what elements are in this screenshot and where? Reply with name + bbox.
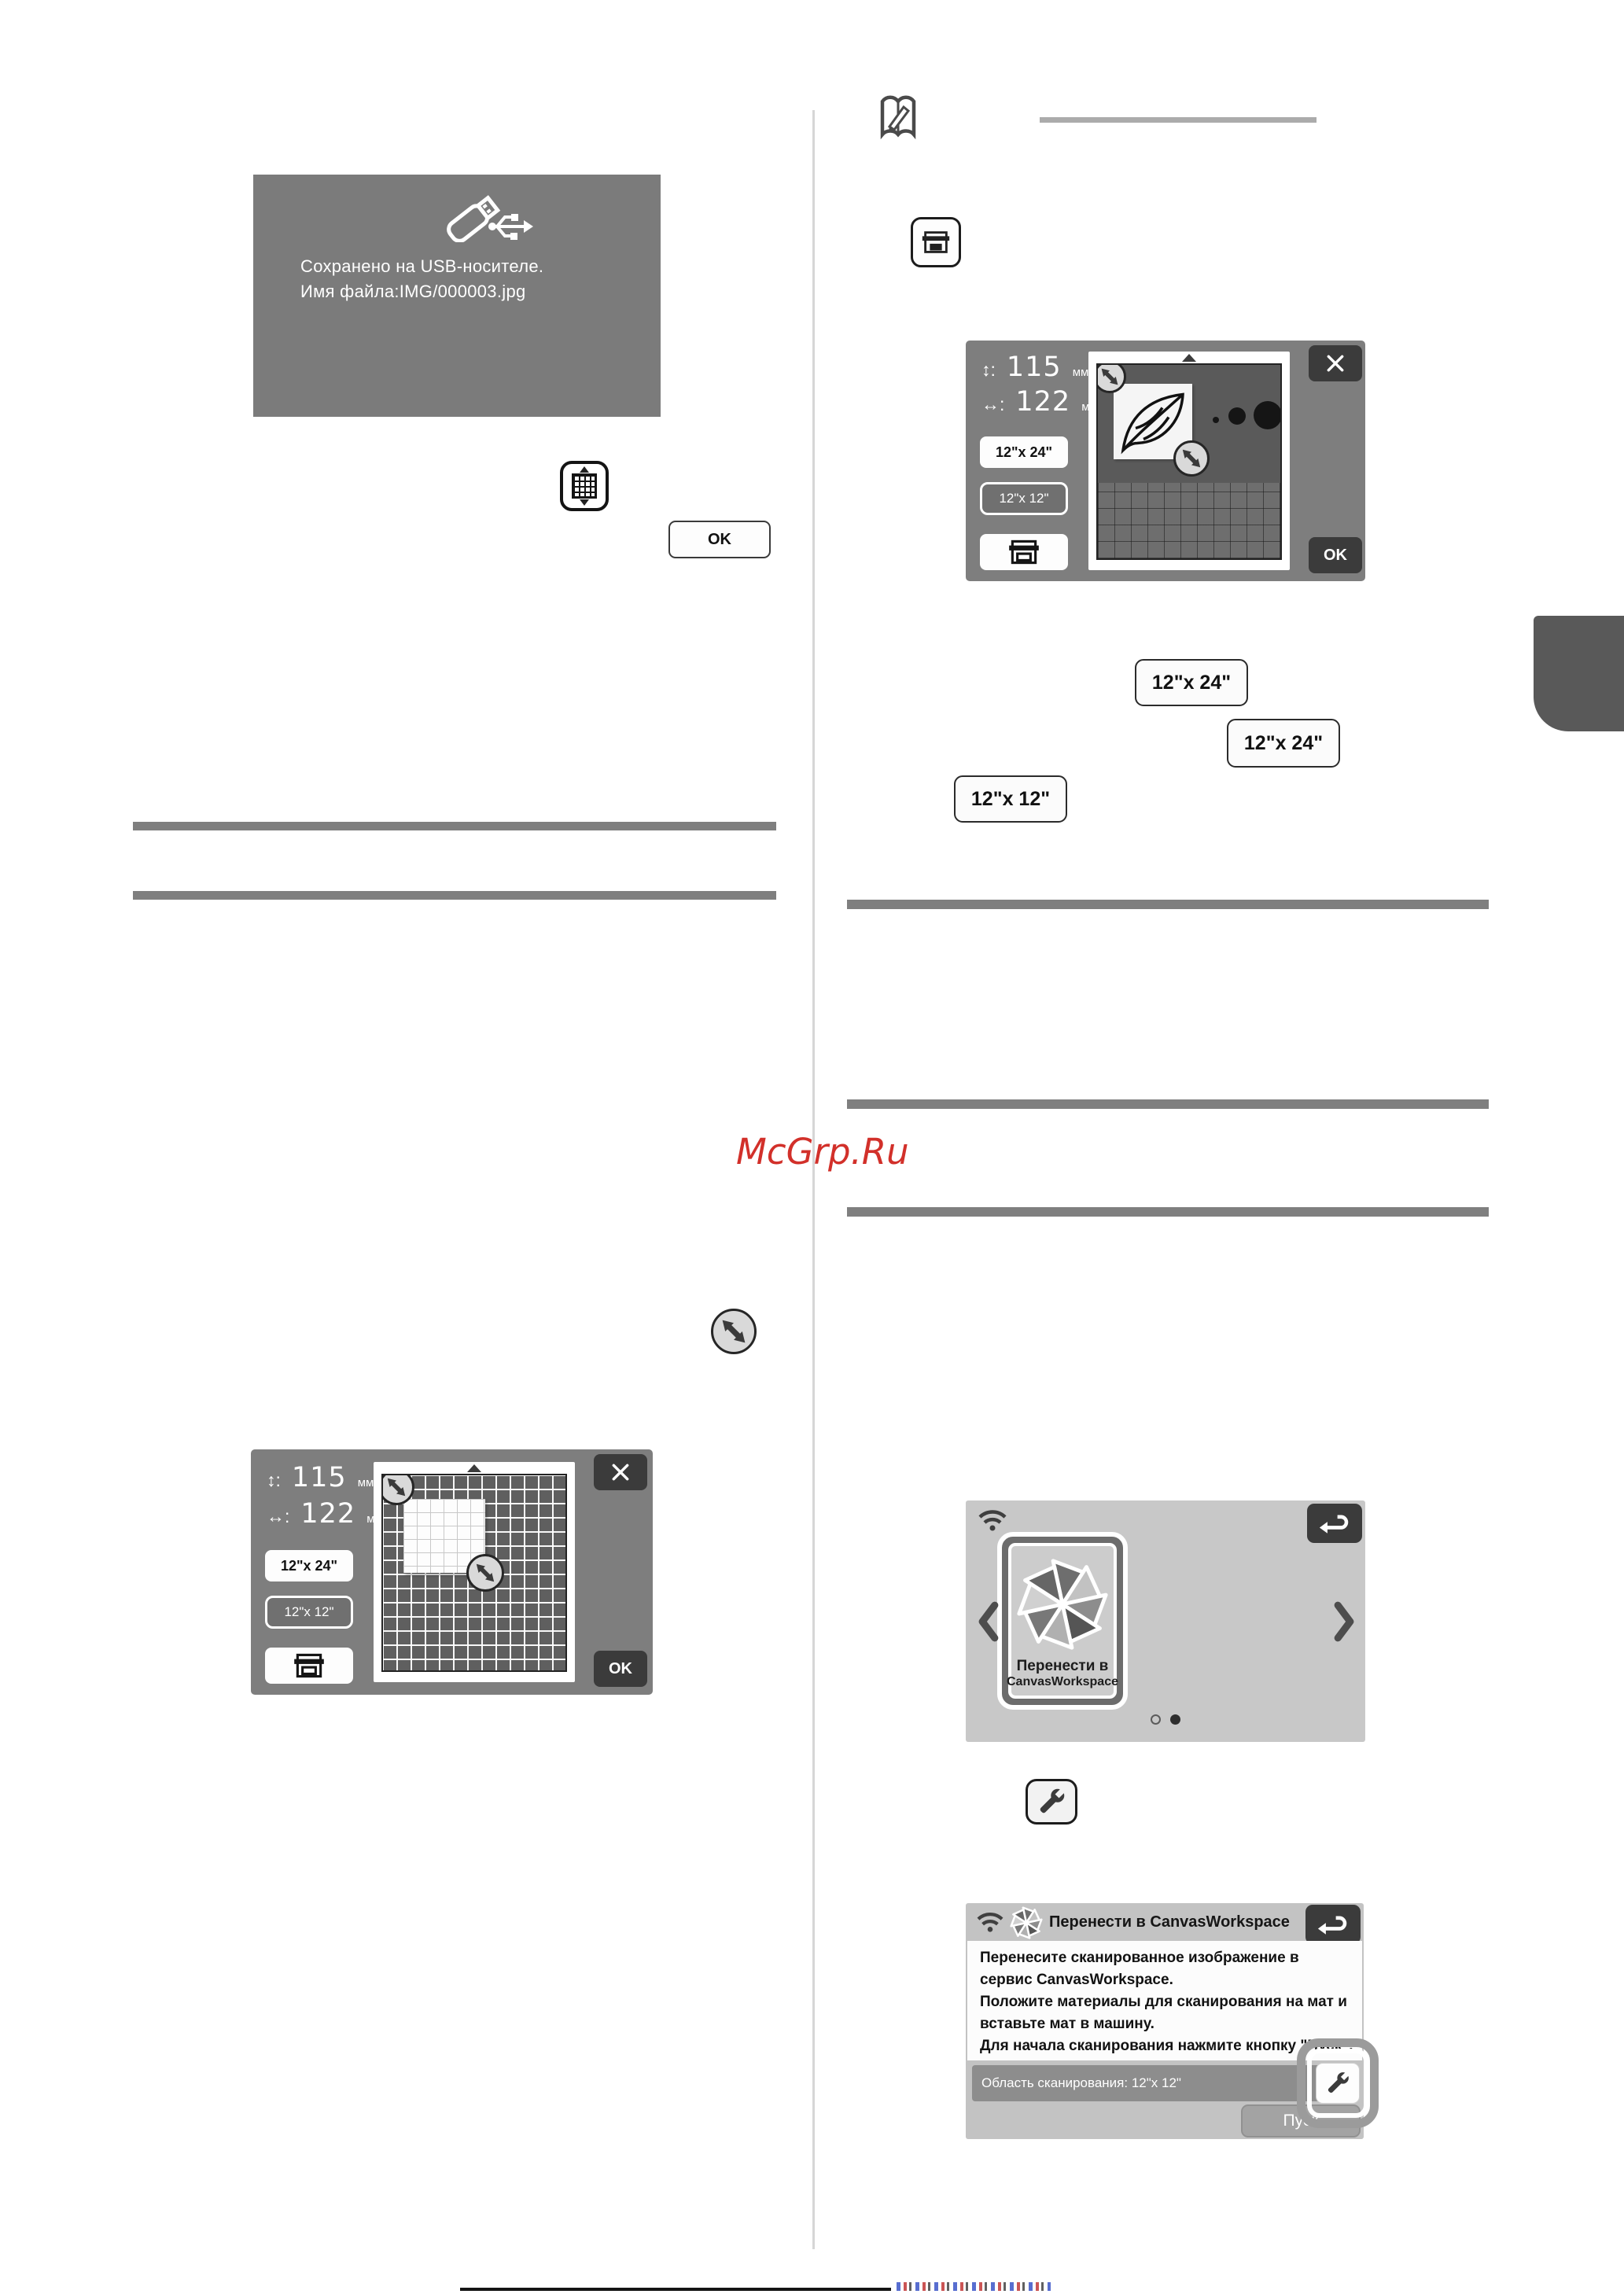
horizontal-arrow-icon: ↔: — [981, 394, 1004, 415]
body-line: сервис CanvasWorkspace. — [980, 1969, 1362, 1991]
section-rule — [133, 891, 776, 900]
page-dot-inactive — [1151, 1714, 1161, 1725]
dialog-title: Перенести в CanvasWorkspace — [1049, 1903, 1290, 1941]
back-button[interactable] — [1305, 1905, 1361, 1944]
ok-button[interactable]: OK — [668, 521, 771, 558]
section-rule — [847, 900, 1489, 909]
wifi-icon — [977, 1507, 1008, 1532]
manual-page: Сохранено на USB-носителе. Имя файла:IMG… — [0, 0, 1624, 2294]
mat-preview — [374, 1462, 575, 1682]
usb-message-line1: Сохранено на USB-носителе. — [300, 256, 543, 277]
close-button[interactable] — [594, 1454, 647, 1490]
machine-load-mat-icon — [291, 1651, 327, 1680]
carousel-prev-icon[interactable] — [978, 1601, 999, 1642]
ok-button[interactable]: OK — [1309, 537, 1362, 573]
pinwheel-icon — [1010, 1906, 1043, 1939]
mat-grid-icon — [572, 473, 597, 499]
mat-dotted-grid — [1098, 483, 1280, 558]
size-12x12-button[interactable]: 12"x 12" — [980, 482, 1068, 515]
footer-fine-print — [897, 2282, 1051, 2291]
wrench-icon — [1324, 2070, 1351, 2097]
section-rule — [847, 1099, 1489, 1109]
calibration-dot-small — [1213, 417, 1219, 423]
horizontal-arrow-icon: ↔: — [267, 1506, 289, 1527]
height-readout: ↕: 115 мм — [981, 352, 1088, 383]
usb-flash-drive-icon — [442, 186, 533, 242]
ok-button-highlight-inner: OK — [658, 511, 781, 568]
feed-mat-button[interactable] — [980, 534, 1068, 570]
triangle-down-icon — [580, 499, 589, 506]
size-12x24-button[interactable]: 12"x 24" — [265, 1550, 353, 1581]
pinwheel-icon — [1015, 1557, 1110, 1651]
ok-button-highlight: OK — [646, 500, 793, 579]
size-button-12x24-top[interactable]: 12"x 24" — [1135, 659, 1248, 706]
feed-mat-button[interactable] — [265, 1648, 353, 1684]
close-icon — [1325, 353, 1346, 374]
load-mat-button[interactable] — [911, 217, 961, 267]
return-arrow-icon — [1319, 1512, 1350, 1534]
wifi-icon — [975, 1909, 1005, 1933]
card-title-line2: CanvasWorkspace — [1007, 1675, 1118, 1689]
scan-settings-wrench-button[interactable] — [1316, 2063, 1360, 2104]
background-scan-grid-button[interactable] — [560, 461, 609, 511]
height-readout: ↕: 115 мм — [267, 1462, 374, 1493]
chapter-edge-tab — [1534, 616, 1624, 731]
body-line: Перенесите сканированное изображение в — [980, 1947, 1362, 1969]
mat-scan-area — [1096, 363, 1282, 560]
page-dots — [966, 1714, 1365, 1725]
mat-scan-area — [381, 1474, 567, 1672]
transfer-to-canvasworkspace-card[interactable]: Перенести в CanvasWorkspace — [997, 1532, 1128, 1710]
width-readout: ↔: 122 мм — [267, 1498, 383, 1530]
back-button[interactable] — [1307, 1504, 1362, 1543]
body-line: вставьте мат в машину. — [980, 2013, 1362, 2035]
return-arrow-icon — [1317, 1913, 1349, 1935]
calibration-dot-medium — [1228, 407, 1246, 425]
mat-top-marker-icon — [1182, 354, 1196, 362]
dialog-body-text: Перенесите сканированное изображение в с… — [967, 1941, 1362, 2060]
wrench-button-highlight — [1297, 2038, 1379, 2128]
triangle-up-icon — [580, 466, 589, 473]
wrench-icon — [1036, 1786, 1067, 1817]
carousel-next-icon[interactable] — [1334, 1601, 1354, 1642]
size-button-12x24-middle[interactable]: 12"x 24" — [1227, 719, 1340, 768]
size-12x12-button[interactable]: 12"x 12" — [265, 1596, 353, 1629]
scan-preview-screen-grid: ↕: 115 мм ↔: 122 мм 12"x 24" 12"x 12" — [251, 1449, 653, 1695]
machine-load-mat-icon — [1006, 538, 1042, 566]
scan-area-label: Область сканирования: 12"x 12" — [981, 2075, 1181, 2091]
card-title-line1: Перенести в — [1017, 1658, 1109, 1675]
machine-load-mat-icon — [919, 228, 952, 256]
scan-preview-screen-leaf: ↕: 115 мм ↔: 122 мм 12"x 24" 12"x 12" — [966, 341, 1365, 581]
size-12x24-button[interactable]: 12"x 24" — [980, 436, 1068, 468]
ok-button[interactable]: OK — [594, 1651, 647, 1687]
calibration-dot-large — [1254, 401, 1282, 429]
usb-saved-dialog: Сохранено на USB-носителе. Имя файла:IMG… — [253, 175, 661, 417]
wrench-button-highlight-inner — [1307, 2049, 1368, 2118]
heading-underline — [1040, 117, 1317, 123]
settings-wrench-button[interactable] — [1026, 1779, 1077, 1825]
transfer-dialog: Перенести в CanvasWorkspace Перенесите с… — [966, 1903, 1364, 2139]
resize-arrows-icon — [711, 1309, 757, 1354]
usb-message-line2: Имя файла:IMG/000003.jpg — [300, 282, 526, 302]
section-rule — [847, 1207, 1489, 1217]
column-divider — [812, 110, 815, 2249]
vertical-arrow-icon: ↕: — [981, 359, 996, 381]
size-button-12x12-bottom[interactable]: 12"x 12" — [954, 775, 1067, 823]
section-rule — [133, 822, 776, 830]
dialog-header: Перенести в CanvasWorkspace — [966, 1903, 1364, 1941]
page-dot-active — [1170, 1714, 1180, 1725]
mat-top-marker-icon — [467, 1464, 481, 1472]
resize-handle-icon[interactable] — [466, 1554, 504, 1592]
close-icon — [610, 1462, 631, 1482]
scan-area-bar: Область сканирования: 12"x 12" — [972, 2065, 1335, 2101]
book-and-pencil-icon — [879, 93, 917, 143]
width-readout: ↔: 122 мм — [981, 386, 1098, 418]
body-line: Положите материалы для сканирования на м… — [980, 1991, 1362, 2013]
canvasworkspace-home-screen: Перенести в CanvasWorkspace — [966, 1500, 1365, 1742]
resize-handle-icon[interactable] — [1173, 440, 1210, 477]
footer-rule — [460, 2288, 891, 2291]
mat-preview — [1088, 352, 1290, 570]
vertical-arrow-icon: ↕: — [267, 1470, 281, 1491]
site-watermark: McGrp.Ru — [736, 1131, 909, 1173]
close-button[interactable] — [1309, 345, 1362, 381]
